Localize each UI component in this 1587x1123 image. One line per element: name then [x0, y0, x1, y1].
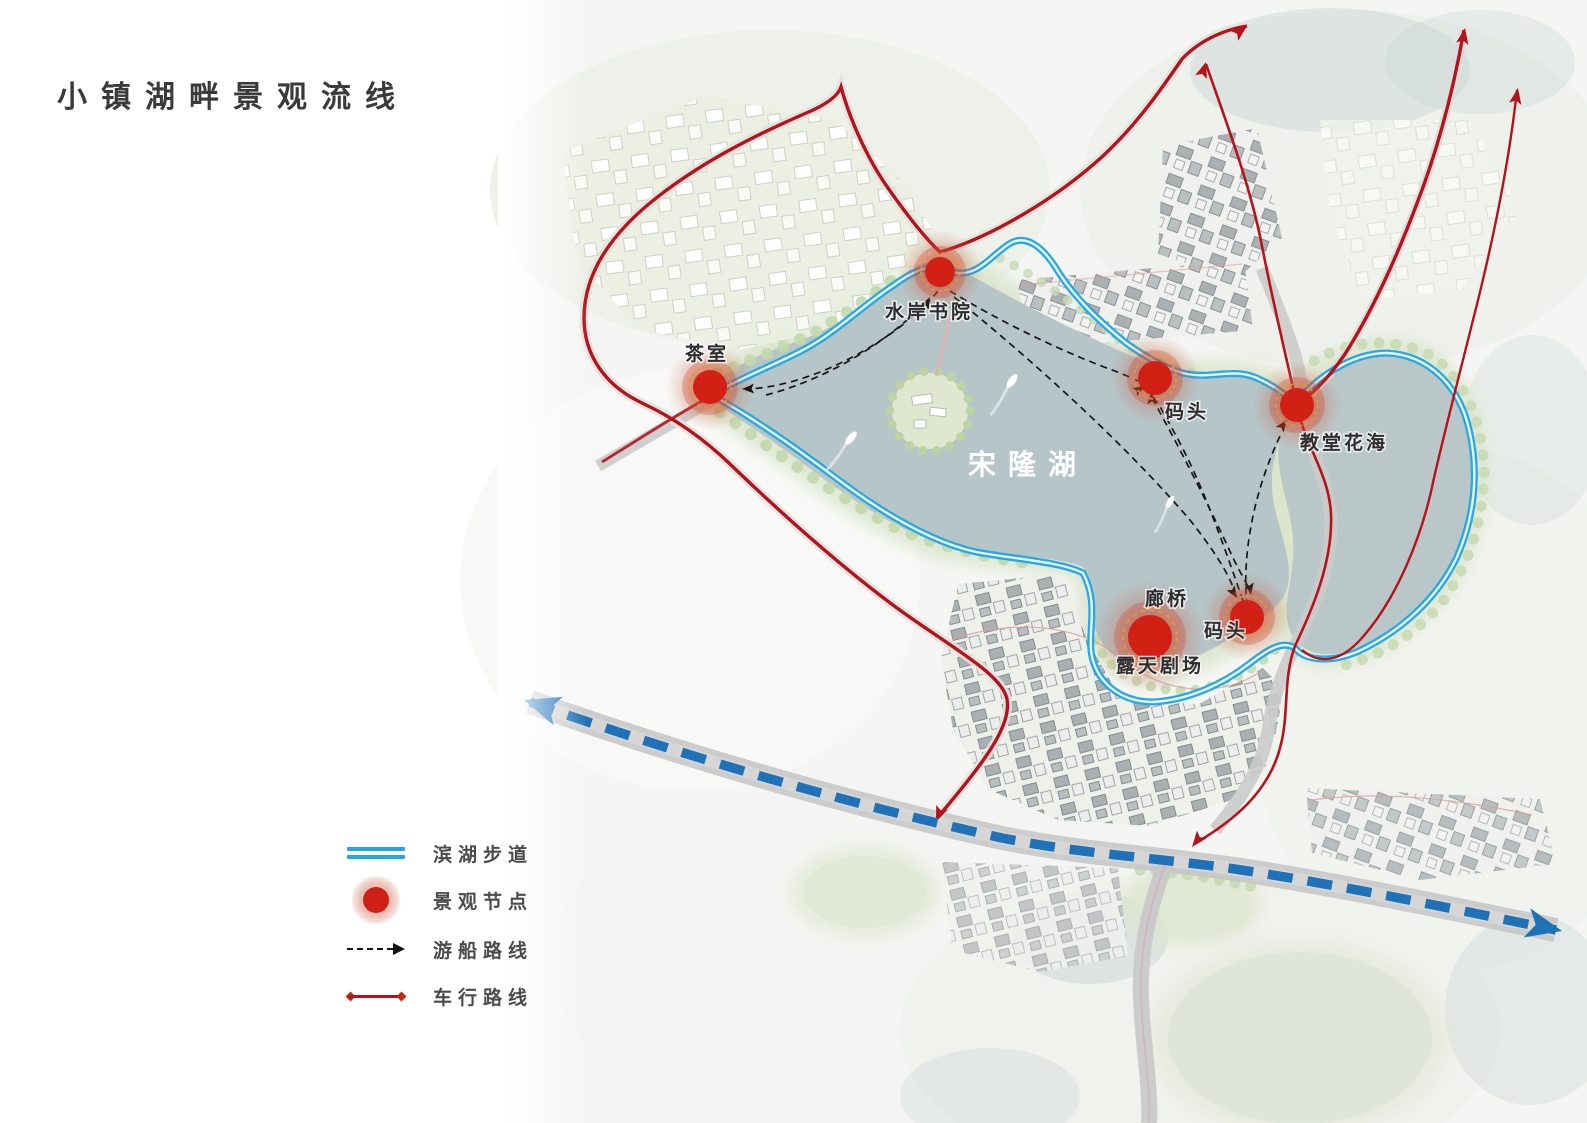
label-open-air-theater: 露天剧场 [1116, 655, 1204, 677]
page-title: 小镇湖畔景观流线 [57, 72, 409, 116]
label-gallery-bridge: 廊桥 [1145, 587, 1189, 610]
landscape-node-swatch [352, 876, 400, 924]
legend-vehicle-label: 车行路线 [433, 983, 533, 1010]
label-dock-south: 码头 [1204, 620, 1248, 642]
legend-item-boat-route: 游船路线 [345, 928, 533, 970]
legend: 滨湖步道 景观节点 游船路线 车行路线 [345, 834, 533, 1022]
plan-sheet: 水岸书院 茶室 码头 教堂花海 宋隆湖 廊桥 码头 露天剧场 小镇湖畔景观流线 … [0, 0, 1587, 1123]
walkway-line-swatch [347, 847, 405, 859]
boat-route-swatch [347, 943, 405, 955]
legend-item-lakeside-walkway: 滨湖步道 [345, 834, 533, 872]
legend-boat-label: 游船路线 [433, 936, 533, 963]
lake-label: 宋隆湖 [968, 449, 1088, 480]
vehicle-route-swatch [347, 991, 405, 1001]
label-tea-room: 茶室 [685, 342, 729, 365]
label-church-flower-sea: 教堂花海 [1300, 431, 1388, 454]
label-dock-north: 码头 [1165, 401, 1209, 423]
label-waterside-academy: 水岸书院 [885, 300, 973, 323]
legend-item-landscape-node: 景观节点 [345, 872, 533, 928]
legend-walkway-label: 滨湖步道 [433, 840, 533, 867]
legend-node-label: 景观节点 [433, 887, 533, 914]
node-dock-south [1203, 573, 1291, 661]
legend-item-vehicle-route: 车行路线 [345, 970, 533, 1022]
master-plan-map: 水岸书院 茶室 码头 教堂花海 宋隆湖 廊桥 码头 露天剧场 [0, 0, 1587, 1123]
